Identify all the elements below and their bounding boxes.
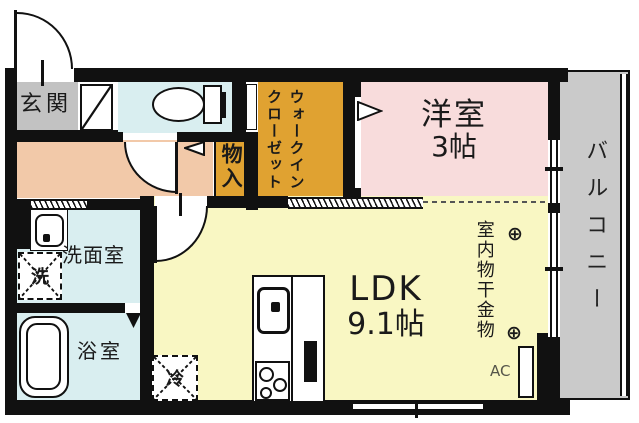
monoiri-door-arrow-icon [184,141,205,156]
floor-plan: 物入 洗 冷 AC 玄関 ウォークイン クローゼット 洋室 [0,0,639,423]
wall [12,130,118,142]
ldk-size: 9.1帖 [347,308,425,341]
bathtub-inner [26,323,61,390]
wall [74,68,568,82]
bedroom-size: 3帖 [431,132,477,163]
washbasin-partition [17,209,30,249]
ldk-label: LDK 9.1帖 [322,271,450,341]
wic-label: ウォークイン クローゼット [262,89,308,207]
wall [232,82,246,142]
wall [17,303,125,313]
bedroom-sliding-partition [288,197,423,209]
wall [548,203,560,213]
kitchen-faucet [271,302,280,312]
room-boundary-dotted-line [423,201,548,203]
wall [537,333,560,402]
window-center-tick [415,400,418,418]
washbasin-faucet [43,234,50,242]
window-pane-line [556,213,558,337]
ac-label: AC [490,363,510,380]
monoiri-label: 物入 [219,143,242,191]
window-center-tick [545,167,563,171]
balcony-label: バルコニー [582,139,606,324]
ldk-door-tick [179,193,182,216]
laundry-hook-icon: ⊕ [506,323,522,344]
washroom-label: 洗面室 [62,244,125,266]
ac-unit [518,346,534,398]
balcony-railing [620,74,628,396]
kitchen-counter-divider [291,277,293,401]
wall [5,68,17,414]
bedroom-label: 洋室 3帖 [375,98,533,163]
shoe-cabinet [80,84,113,131]
bottom-wall-window [353,404,483,409]
laundry-hook-icon: ⊕ [507,224,523,245]
stove-burner [260,387,272,399]
wic-label-line1: ウォークイン [288,89,305,207]
entry-door-arc [17,12,73,69]
genkan-label: 玄関 [20,93,72,117]
toilet-bowl [152,87,205,122]
window-center-tick [545,267,563,271]
ldk-door-leaf [154,206,157,263]
bathtub [19,316,69,398]
bathroom-label: 浴室 [77,340,123,362]
window-pane-line [550,140,552,203]
duct-niche [246,84,257,130]
fridge-spot: 冷 [152,355,198,401]
wall [548,68,560,140]
wall [118,132,123,142]
wic-label-line2: クローゼット [266,89,283,207]
stove-burner [259,367,274,382]
washer-spot: 洗 [18,252,62,300]
washer-label: 洗 [31,263,49,289]
fridge-label: 冷 [166,365,184,391]
toilet-tank-detail [222,92,226,118]
window-pane-line [550,213,552,337]
washbasin-bowl [35,214,64,247]
ldk-name: LDK [349,271,422,308]
entry-door-tick [41,60,44,86]
counter-end-panel [304,341,317,382]
bathroom-door-gap [125,303,140,313]
bedroom-name: 洋室 [421,98,487,132]
window-pane-line [556,140,558,203]
laundry-hardware-label: 室内物干金物 [474,220,494,340]
stove-burner [273,378,287,392]
toilet-door-leaf [175,142,178,194]
wall [87,199,140,210]
shoe-cabinet-diagonal [82,86,111,129]
toilet-tank [203,85,222,124]
